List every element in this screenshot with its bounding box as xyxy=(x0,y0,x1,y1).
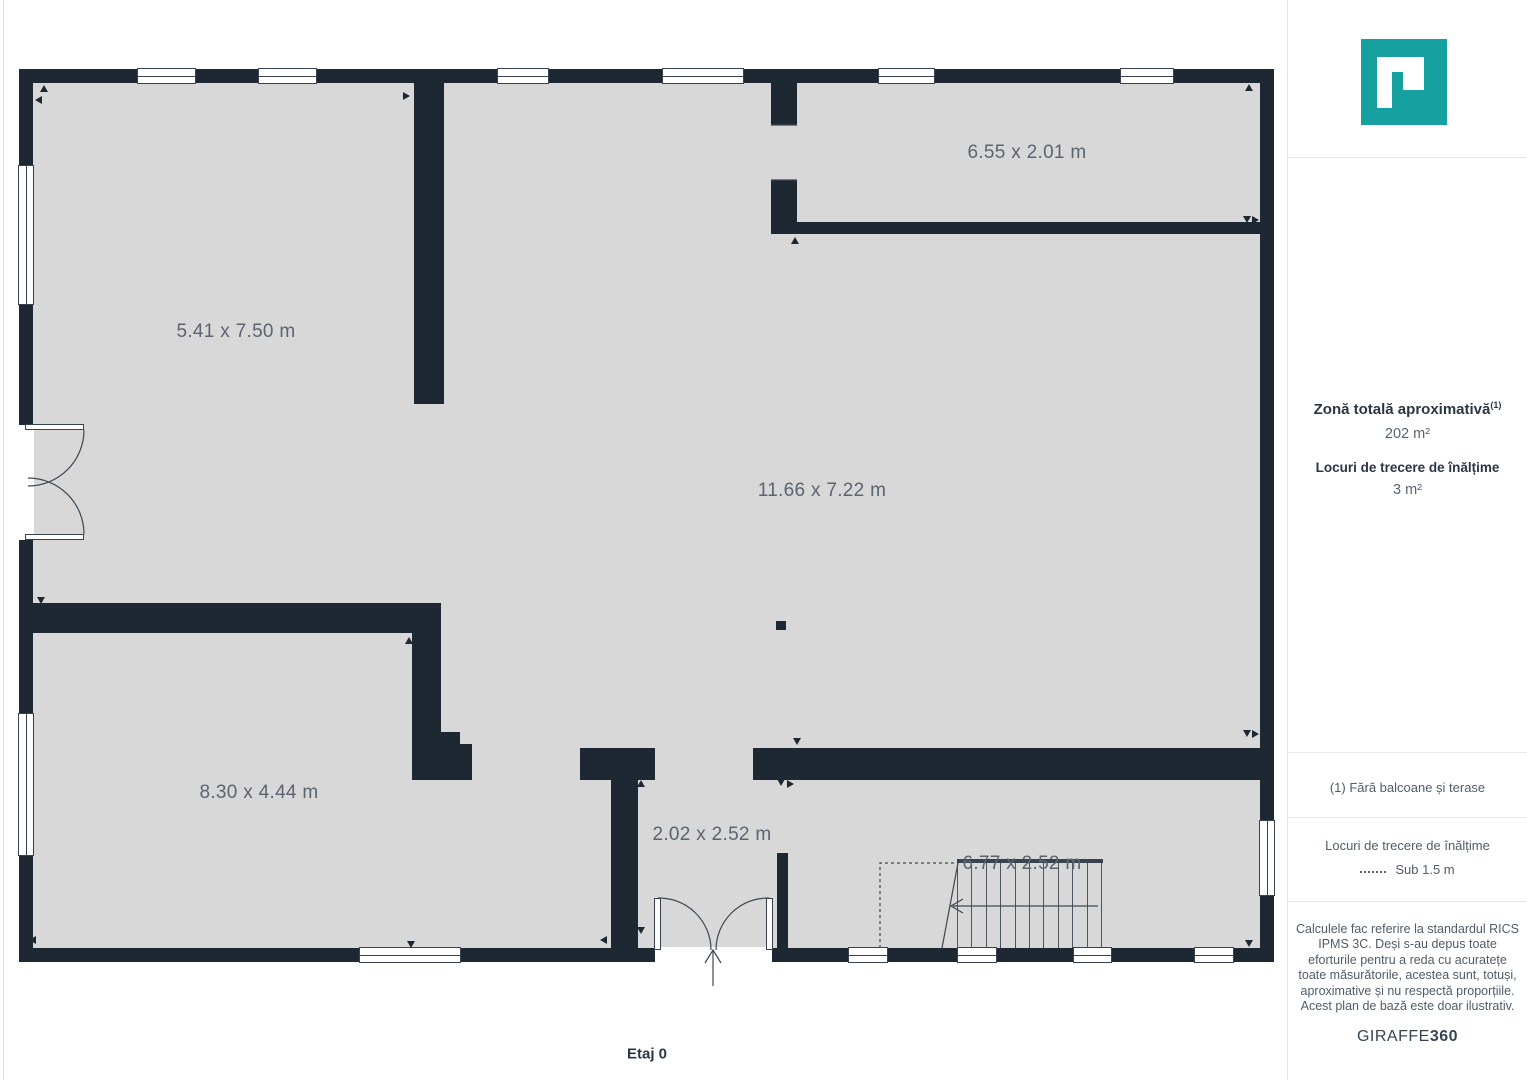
low-height-value: 3 m² xyxy=(1288,482,1527,498)
legend-row: Sub 1.5 m xyxy=(1288,862,1527,877)
stair-tread xyxy=(1101,863,1102,948)
window xyxy=(18,713,34,856)
disclaimer-line: Calculele fac referire la standardul RIC… xyxy=(1288,922,1527,937)
wall xyxy=(771,83,797,125)
camera-marker xyxy=(1245,84,1253,91)
camera-marker xyxy=(600,936,607,944)
floorplan-canvas: 5.41 x 7.50 m6.55 x 2.01 m11.66 x 7.22 m… xyxy=(0,0,1287,1080)
room-dimensions-label: 6.77 x 2.52 m xyxy=(962,853,1081,875)
window xyxy=(258,68,317,84)
window xyxy=(957,947,997,963)
stair-tread xyxy=(1000,863,1001,948)
sidebar-divider xyxy=(1288,901,1527,902)
stair-tread xyxy=(971,863,972,948)
disclaimer-line: Acest plan de bază este doar ilustrativ. xyxy=(1288,999,1527,1014)
camera-marker xyxy=(35,96,42,104)
window xyxy=(137,68,196,84)
wall xyxy=(611,780,638,948)
footnote-text: (1) Fără balcoane și terase xyxy=(1288,780,1527,795)
camera-marker xyxy=(791,237,799,244)
camera-marker xyxy=(40,85,48,92)
window xyxy=(878,68,935,84)
window xyxy=(848,947,888,963)
camera-marker xyxy=(29,936,36,944)
camera-marker xyxy=(1245,940,1253,947)
wall xyxy=(580,748,655,780)
wall xyxy=(33,603,441,633)
camera-marker xyxy=(1243,216,1251,223)
wall xyxy=(776,621,786,630)
wall xyxy=(753,748,1260,780)
wall xyxy=(777,853,788,948)
window xyxy=(497,68,549,84)
total-area-value: 202 m² xyxy=(1288,426,1527,442)
dashed-line-sample xyxy=(1360,868,1386,873)
sidebar: Zonă totală aproximativă(1) 202 m² Locur… xyxy=(1287,0,1527,1080)
window xyxy=(1194,947,1234,963)
camera-marker xyxy=(1243,730,1251,737)
disclaimer-line: aproximative și nu respectă proporțiile. xyxy=(1288,984,1527,999)
room-dimensions-label: 5.41 x 7.50 m xyxy=(176,321,295,343)
stair-tread xyxy=(1072,863,1073,948)
total-area-label-text: Zonă totală aproximativă xyxy=(1314,401,1491,418)
stair-tread xyxy=(957,863,958,948)
door-leaf xyxy=(25,424,84,430)
wall xyxy=(412,633,441,780)
camera-marker xyxy=(405,637,413,644)
floor-title: Etaj 0 xyxy=(627,1046,667,1063)
camera-marker xyxy=(777,779,785,786)
stair-tread xyxy=(1043,863,1044,948)
room-dimensions-label: 2.02 x 2.52 m xyxy=(652,824,771,846)
stair-tread xyxy=(986,863,987,948)
brand-wordmark: GIRAFFE360 xyxy=(1288,1028,1527,1046)
disclaimer-text: Calculele fac referire la standardul RIC… xyxy=(1288,922,1527,1014)
door-opening xyxy=(18,425,34,540)
disclaimer-line: IPMS 3C. Deși s-au depus toate xyxy=(1288,937,1527,952)
wall xyxy=(414,83,444,404)
room-dimensions-label: 8.30 x 4.44 m xyxy=(199,782,318,804)
wall xyxy=(460,744,472,780)
wall xyxy=(771,180,797,234)
total-area-label: Zonă totală aproximativă(1) xyxy=(1288,400,1527,418)
camera-marker xyxy=(637,927,645,934)
window xyxy=(359,947,461,963)
window xyxy=(1073,947,1112,963)
window xyxy=(1259,820,1275,896)
camera-marker xyxy=(787,780,794,788)
wall xyxy=(797,222,1260,234)
footnote-mark: (1) xyxy=(1490,400,1501,410)
stair-tread xyxy=(1015,863,1016,948)
logo-p-glyph xyxy=(1361,39,1447,125)
door-leaf xyxy=(766,898,773,950)
camera-marker xyxy=(37,597,45,604)
sidebar-divider xyxy=(1288,752,1527,753)
door-leaf xyxy=(654,898,661,950)
camera-marker xyxy=(1252,216,1259,224)
door-leaf xyxy=(25,534,84,540)
stair-tread xyxy=(1058,863,1059,948)
floorplan-geometry-layer: 5.41 x 7.50 m6.55 x 2.01 m11.66 x 7.22 m… xyxy=(0,0,1287,1080)
stair-tread xyxy=(1087,863,1088,948)
sidebar-divider xyxy=(1288,157,1527,158)
room-dimensions-label: 6.55 x 2.01 m xyxy=(967,142,1086,164)
disclaimer-line: toate măsurătorile, acestea sunt, totuși… xyxy=(1288,968,1527,983)
camera-marker xyxy=(407,941,415,948)
camera-marker xyxy=(637,780,645,787)
room-dimensions-label: 11.66 x 7.22 m xyxy=(758,480,886,502)
legend-title: Locuri de trecere de înălțime xyxy=(1288,838,1527,853)
window xyxy=(18,165,34,305)
sidebar-divider xyxy=(1288,817,1527,818)
brand-name: GIRAFFE xyxy=(1357,1028,1430,1045)
camera-marker xyxy=(793,738,801,745)
brand-suffix: 360 xyxy=(1430,1028,1458,1045)
giraffe360-logo xyxy=(1361,39,1447,125)
stair-tread xyxy=(1029,863,1030,948)
camera-marker xyxy=(403,92,410,100)
window xyxy=(662,68,744,84)
disclaimer-line: eforturile pentru a reda cu acuratețe xyxy=(1288,953,1527,968)
legend-value: Sub 1.5 m xyxy=(1395,862,1454,877)
camera-marker xyxy=(442,732,449,740)
page: 5.41 x 7.50 m6.55 x 2.01 m11.66 x 7.22 m… xyxy=(0,0,1527,1080)
low-height-label: Locuri de trecere de înălțime xyxy=(1288,460,1527,475)
camera-marker xyxy=(1252,730,1259,738)
wall xyxy=(19,69,1274,83)
window xyxy=(1120,68,1174,84)
door-opening xyxy=(655,947,772,963)
